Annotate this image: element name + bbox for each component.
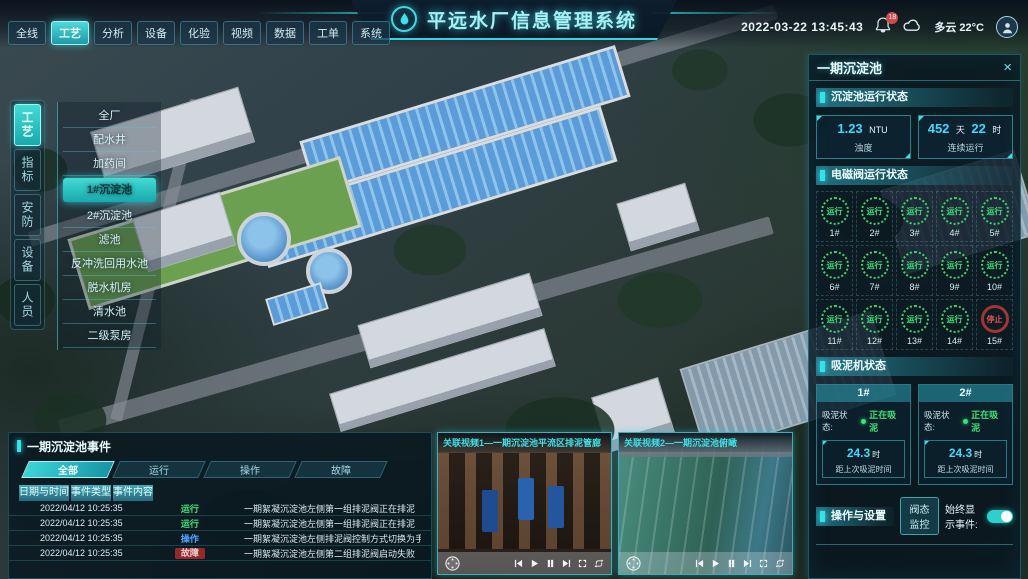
uptime-days: 452 <box>928 121 950 136</box>
mud-status-label: 吸泥状态: <box>924 409 960 433</box>
pause-icon[interactable] <box>727 559 736 568</box>
video-controls <box>438 552 611 574</box>
mud-machine-card: 2# 吸泥状态: 正在吸泥 24.3时 距上次吸泥时间 <box>918 384 1013 485</box>
valve-id: 8# <box>909 282 919 292</box>
valve-id: 5# <box>989 228 999 238</box>
valve-status-ring: 运行 <box>821 305 849 333</box>
building <box>616 183 699 252</box>
section-header-valves: 电磁阀运行状态 <box>816 166 1013 185</box>
valve-status-ring: 运行 <box>981 251 1009 279</box>
sidebar-tab[interactable]: 人员 <box>14 284 41 326</box>
uptime-hours: 22 <box>971 121 985 136</box>
road <box>58 216 774 437</box>
skip-forward-icon[interactable] <box>562 559 571 568</box>
user-avatar-icon[interactable] <box>996 16 1018 38</box>
loop-icon[interactable] <box>594 559 604 568</box>
mud-time-label: 距上次吸泥时间 <box>836 464 892 475</box>
mud-time-unit: 时 <box>974 450 982 459</box>
valve-id: 15# <box>987 336 1002 346</box>
process-menu-item[interactable]: 配水井 <box>63 128 156 152</box>
bell-icon[interactable]: 18 <box>875 17 891 38</box>
event-datetime: 2022/04/12 10:25:35 <box>19 548 144 558</box>
clarifier-pool <box>306 248 352 294</box>
show-events-toggle[interactable] <box>987 510 1013 523</box>
uptime-stat: 452 天 22 时 连续运行 <box>918 115 1013 159</box>
valve-status-ring: 运行 <box>941 197 969 225</box>
mud-time-value: 24.3 <box>847 446 870 460</box>
event-content: 一期絮凝沉淀池左侧排泥阀控制方式切换为手动 <box>236 532 421 545</box>
operations-section: 操作与设置 阀态监控 始终显示事件: <box>816 497 1013 545</box>
process-menu-item[interactable]: 全厂 <box>63 104 156 128</box>
sedimentation-pool <box>251 106 617 268</box>
section-header-running: 沉淀池运行状态 <box>816 88 1013 107</box>
pause-icon[interactable] <box>546 559 555 568</box>
loop-icon[interactable] <box>775 559 785 568</box>
valve-grid: 运行 1# 运行 2# 运行 3# 运行 4# 运行 5# 运行 6# 运行 7… <box>816 191 1013 350</box>
top-nav-item[interactable]: 分析 <box>94 21 132 45</box>
event-content: 一期絮凝沉淀池左侧第二组排泥阀启动失败 <box>236 547 421 560</box>
events-column-header: 事件内容 <box>113 485 153 501</box>
status-dot-icon <box>861 419 866 424</box>
section-header-mud: 吸泥机状态 <box>816 357 1013 376</box>
small-pool <box>265 282 329 326</box>
events-panel: 一期沉淀池事件 全部 运行 操作 故障 日期与时间 事件类型 事件内容 2022… <box>8 432 432 579</box>
top-nav-item[interactable]: 系统 <box>352 21 390 45</box>
mud-time-label: 距上次吸泥时间 <box>938 464 994 475</box>
valve-monitor-button[interactable]: 阀态监控 <box>900 497 939 535</box>
top-nav-item[interactable]: 工单 <box>309 21 347 45</box>
valve-gauge[interactable]: 运行 10# <box>976 245 1013 296</box>
events-column-header: 日期与时间 <box>19 485 69 501</box>
valve-status-ring: 运行 <box>861 251 889 279</box>
valve-gauge[interactable]: 运行 5# <box>976 191 1013 242</box>
valve-status-ring: 运行 <box>821 197 849 225</box>
turbidity-unit: NTU <box>869 125 888 135</box>
clarifier-pool <box>237 212 291 266</box>
valve-gauge[interactable]: 运行 14# <box>936 299 973 350</box>
valve-id: 6# <box>829 282 839 292</box>
valve-gauge[interactable]: 运行 2# <box>856 191 893 242</box>
event-type: 操作 <box>146 532 234 545</box>
mud-machine-card: 1# 吸泥状态: 正在吸泥 24.3时 距上次吸泥时间 <box>816 384 911 485</box>
process-menu-item[interactable]: 1#沉淀池 <box>63 178 156 202</box>
events-tabs: 全部 运行 操作 故障 <box>9 458 431 480</box>
valve-status-ring: 运行 <box>821 251 849 279</box>
events-filter-tab[interactable]: 运行 <box>112 461 206 478</box>
events-filter-tab[interactable]: 故障 <box>294 461 388 478</box>
play-icon[interactable] <box>530 559 539 568</box>
valve-status-ring: 运行 <box>901 251 929 279</box>
mud-time-box: 24.3时 距上次吸泥时间 <box>924 440 1007 478</box>
valve-id: 3# <box>909 228 919 238</box>
mud-time-value: 24.3 <box>949 446 972 460</box>
mud-status-row: 吸泥状态: 正在吸泥 <box>817 402 910 437</box>
top-nav: 全线 工艺 分析 设备 化验 视频 数据 工单 系统 <box>8 21 390 45</box>
event-type: 运行 <box>146 502 234 515</box>
skip-back-icon[interactable] <box>695 559 704 568</box>
sidebar-tab[interactable]: 工艺 <box>14 104 41 146</box>
top-nav-item[interactable]: 视频 <box>223 21 261 45</box>
event-row[interactable]: 2022/04/12 10:25:35 故障 一期絮凝沉淀池左侧第二组排泥阀启动… <box>9 546 431 561</box>
process-menu: 全厂 配水井 加药间 1#沉淀池 2#沉淀池 滤池 反冲洗回用水池 脱水机房 清… <box>57 102 161 350</box>
valve-id: 2# <box>869 228 879 238</box>
uptime-hours-unit: 时 <box>992 125 1001 135</box>
running-stats: 1.23 NTU 浊度 452 天 22 时 连续运行 <box>816 115 1013 159</box>
valve-id: 13# <box>907 336 922 346</box>
close-icon[interactable]: × <box>1003 60 1012 75</box>
valve-status-ring: 运行 <box>941 251 969 279</box>
top-nav-item[interactable]: 工艺 <box>51 21 89 45</box>
video-panel[interactable]: 关联视频1—一期沉淀池平流区排泥管廊 <box>437 432 612 575</box>
mud-status-value: 正在吸泥 <box>869 408 905 434</box>
event-type: 故障 <box>146 548 234 559</box>
weather-text: 多云 22°C <box>934 19 984 35</box>
events-filter-tab[interactable]: 操作 <box>203 461 297 478</box>
video-controls <box>619 552 792 574</box>
valve-gauge[interactable]: 运行 13# <box>896 299 933 350</box>
mud-machines: 1# 吸泥状态: 正在吸泥 24.3时 距上次吸泥时间 2# 吸泥状态: 正在吸… <box>816 384 1013 485</box>
section-header-ops: 操作与设置 <box>816 507 894 526</box>
header-right: 2022-03-22 13:45:43 18 多云 22°C <box>741 16 1018 38</box>
notification-badge: 18 <box>886 12 898 24</box>
status-dot-icon <box>963 419 968 424</box>
process-menu-item[interactable]: 2#沉淀池 <box>63 204 156 228</box>
page-title: 平远水厂信息管理系统 <box>427 6 637 33</box>
valve-id: 11# <box>827 336 841 346</box>
cloud-icon <box>903 18 922 37</box>
event-row[interactable]: 2022/04/12 10:25:35 运行 一期絮凝沉淀池左侧第一组排泥阀正在… <box>9 501 431 516</box>
sidebar-tab[interactable]: 安防 <box>14 194 41 236</box>
event-datetime: 2022/04/12 10:25:35 <box>19 503 144 513</box>
valve-gauge[interactable]: 运行 3# <box>896 191 933 242</box>
video-panel[interactable]: 关联视频2—一期沉淀池俯瞰 <box>618 432 793 575</box>
valve-gauge[interactable]: 停止 15# <box>976 299 1013 350</box>
valve-status-ring: 运行 <box>861 305 889 333</box>
events-column-header: 事件类型 <box>71 485 111 501</box>
valve-id: 1# <box>829 228 839 238</box>
events-table-header: 日期与时间 事件类型 事件内容 <box>9 480 431 501</box>
process-menu-item[interactable]: 脱水机房 <box>63 276 156 300</box>
mud-status-value: 正在吸泥 <box>971 408 1007 434</box>
sedimentation-pool <box>299 45 630 193</box>
top-nav-item[interactable]: 数据 <box>266 21 304 45</box>
valve-gauge[interactable]: 运行 9# <box>936 245 973 296</box>
ptz-dpad-icon[interactable] <box>626 556 641 571</box>
valve-gauge[interactable]: 运行 4# <box>936 191 973 242</box>
fullscreen-icon[interactable] <box>578 559 587 568</box>
app: 平远水厂信息管理系统 全线 工艺 分析 设备 化验 视频 数据 工单 系统 20… <box>0 0 1028 579</box>
valve-id: 7# <box>869 282 879 292</box>
video-panels: 关联视频1—一期沉淀池平流区排泥管廊 关联视频2—一期沉淀池俯瞰 <box>437 432 793 575</box>
valve-gauge[interactable]: 运行 6# <box>816 245 853 296</box>
building <box>329 328 556 432</box>
valve-id: 14# <box>947 336 962 346</box>
mud-time-box: 24.3时 距上次吸泥时间 <box>822 440 905 478</box>
fullscreen-icon[interactable] <box>759 559 768 568</box>
valve-status-ring: 运行 <box>901 305 929 333</box>
valve-id: 4# <box>949 228 959 238</box>
process-menu-item[interactable]: 滤池 <box>63 228 156 252</box>
event-row[interactable]: 2022/04/12 10:25:35 操作 一期絮凝沉淀池左侧排泥阀控制方式切… <box>9 531 431 546</box>
top-nav-item[interactable]: 化验 <box>180 21 218 45</box>
top-nav-item[interactable]: 全线 <box>8 21 46 45</box>
valve-gauge[interactable]: 运行 7# <box>856 245 893 296</box>
valve-gauge[interactable]: 运行 8# <box>896 245 933 296</box>
event-content: 一期絮凝沉淀池左侧第一组排泥阀正在排泥 <box>236 517 421 530</box>
turbidity-label: 浊度 <box>854 141 872 154</box>
detail-panel: 一期沉淀池 × 沉淀池运行状态 1.23 NTU 浊度 452 天 22 时 连… <box>808 54 1021 579</box>
valve-status-ring: 运行 <box>861 197 889 225</box>
valve-id: 10# <box>987 282 1002 292</box>
title-plate: 平远水厂信息管理系统 <box>351 0 677 40</box>
event-datetime: 2022/04/12 10:25:35 <box>19 518 144 528</box>
turbidity-stat: 1.23 NTU 浊度 <box>816 115 911 159</box>
top-nav-item[interactable]: 设备 <box>137 21 175 45</box>
valve-id: 9# <box>949 282 959 292</box>
mud-status-row: 吸泥状态: 正在吸泥 <box>919 402 1012 437</box>
valve-gauge[interactable]: 运行 1# <box>816 191 853 242</box>
mud-machine-id: 2# <box>919 385 1012 402</box>
events-filter-tab[interactable]: 全部 <box>21 461 115 478</box>
skip-back-icon[interactable] <box>514 559 523 568</box>
event-row[interactable]: 2022/04/12 10:25:35 运行 一期絮凝沉淀池左侧第一组排泥阀正在… <box>9 516 431 531</box>
valve-status-ring: 运行 <box>981 197 1009 225</box>
process-menu-item[interactable]: 反冲洗回用水池 <box>63 252 156 276</box>
detail-panel-title: 一期沉淀池 <box>817 58 882 77</box>
datetime-text: 2022-03-22 13:45:43 <box>741 20 863 34</box>
uptime-label: 连续运行 <box>947 141 983 154</box>
ptz-dpad-icon[interactable] <box>445 556 460 571</box>
video-title: 关联视频1—一期沉淀池平流区排泥管廊 <box>438 433 611 452</box>
valve-id: 12# <box>867 336 882 346</box>
valve-status-ring: 运行 <box>901 197 929 225</box>
video-title: 关联视频2—一期沉淀池俯瞰 <box>619 433 792 452</box>
water-drop-logo-icon <box>391 6 417 32</box>
skip-forward-icon[interactable] <box>743 559 752 568</box>
process-menu-item[interactable]: 清水池 <box>63 300 156 324</box>
play-icon[interactable] <box>711 559 720 568</box>
sidebar-tab[interactable]: 设备 <box>14 239 41 281</box>
building <box>357 273 542 369</box>
event-datetime: 2022/04/12 10:25:35 <box>19 533 144 543</box>
mud-time-unit: 时 <box>872 450 880 459</box>
header-decor-line <box>653 12 783 14</box>
valve-status-ring: 停止 <box>981 305 1009 333</box>
detail-panel-header: 一期沉淀池 × <box>809 55 1020 81</box>
process-menu-item[interactable]: 加药间 <box>63 152 156 176</box>
events-panel-title: 一期沉淀池事件 <box>9 433 431 458</box>
valve-status-ring: 运行 <box>941 305 969 333</box>
mud-machine-id: 1# <box>817 385 910 402</box>
left-sidebar: 工艺 指标 安防 设备 人员 <box>10 100 45 330</box>
uptime-days-unit: 天 <box>956 125 965 135</box>
mud-status-label: 吸泥状态: <box>822 409 858 433</box>
valve-gauge[interactable]: 运行 12# <box>856 299 893 350</box>
events-table-body: 2022/04/12 10:25:35 运行 一期絮凝沉淀池左侧第一组排泥阀正在… <box>9 501 431 561</box>
turbidity-value: 1.23 <box>837 121 862 136</box>
event-type: 运行 <box>146 517 234 530</box>
event-content: 一期絮凝沉淀池左侧第一组排泥阀正在排泥 <box>236 502 421 515</box>
process-menu-item[interactable]: 二级泵房 <box>63 324 156 348</box>
valve-gauge[interactable]: 运行 11# <box>816 299 853 350</box>
show-events-label: 始终显示事件: <box>945 501 981 531</box>
sidebar-tab[interactable]: 指标 <box>14 149 41 191</box>
